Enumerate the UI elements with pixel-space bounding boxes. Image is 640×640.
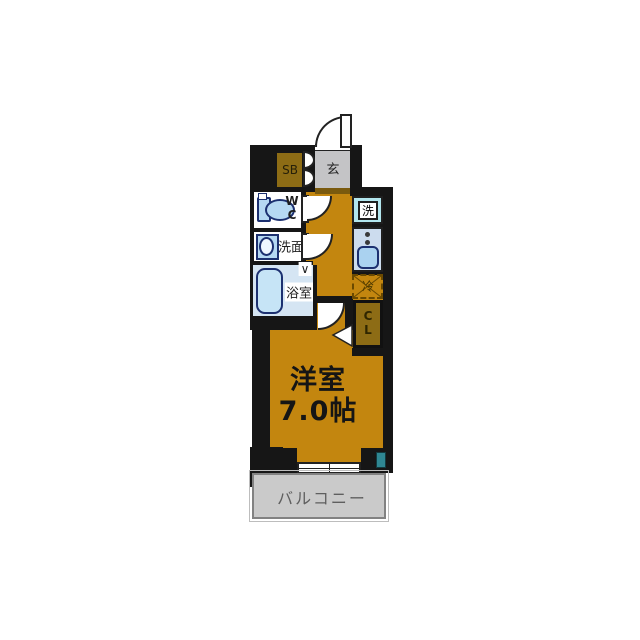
toilet-label-c: C	[288, 208, 297, 222]
wall-bath-right	[313, 265, 317, 316]
fridge-label: 冷	[362, 278, 374, 295]
closet-door-triangle	[331, 323, 354, 348]
closet-label-c: C	[364, 309, 373, 323]
entrance-label: 玄	[326, 159, 339, 178]
side-window	[376, 452, 386, 468]
bathtub-icon	[256, 268, 283, 314]
washer-space: 洗	[352, 196, 383, 224]
wall-kitchen-top	[350, 187, 393, 196]
closet-label-l: L	[364, 323, 372, 337]
entrance-door-leaf	[340, 114, 352, 148]
kitchen-burner-dot-2	[365, 240, 370, 245]
toilet-label: W C	[284, 194, 300, 222]
kitchen-sink-icon	[357, 246, 379, 269]
balcony-label: バルコニー	[277, 485, 367, 509]
washer-label: 洗	[362, 202, 374, 219]
bathroom-label: 浴室	[285, 283, 313, 302]
washer-inner-box: 洗	[358, 201, 378, 220]
toilet-paper-icon	[258, 193, 267, 200]
window-center-tick	[329, 464, 330, 472]
main-room-name: 洋室	[258, 365, 378, 396]
entrance-step	[315, 188, 350, 194]
bathroom-folding-door-mark: ∨	[299, 262, 312, 276]
wall-right	[383, 187, 393, 473]
washroom-sink-bowl-icon	[259, 237, 274, 256]
kitchen-burner-dot-1	[365, 232, 370, 237]
wall-bottom-left	[283, 448, 297, 473]
wall-below-closet	[352, 348, 393, 356]
main-room-size: 7.0帖	[258, 396, 378, 427]
main-room-label: 洋室 7.0帖	[258, 365, 378, 427]
closet-label: C L	[360, 309, 376, 337]
toilet-label-w: W	[285, 194, 298, 208]
floor-plan: SB 玄 W C 洗面 浴室 ∨ 洗 冷 C	[0, 0, 640, 640]
shoe-box-label: SB	[282, 163, 298, 177]
wall-door-stub-top	[317, 296, 353, 303]
